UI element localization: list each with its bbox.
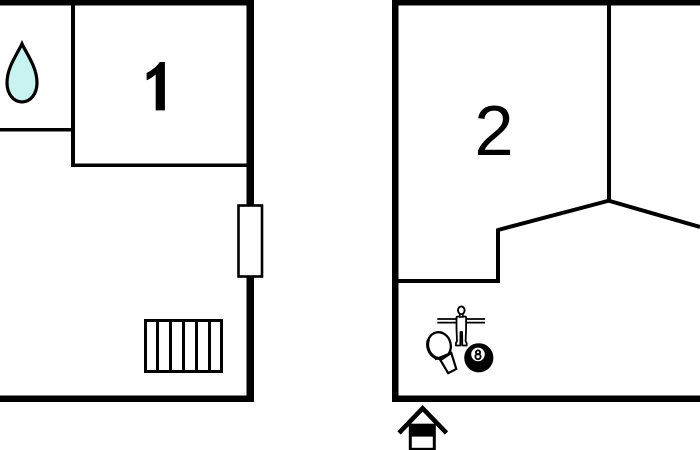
svg-text:2: 2	[474, 91, 513, 170]
